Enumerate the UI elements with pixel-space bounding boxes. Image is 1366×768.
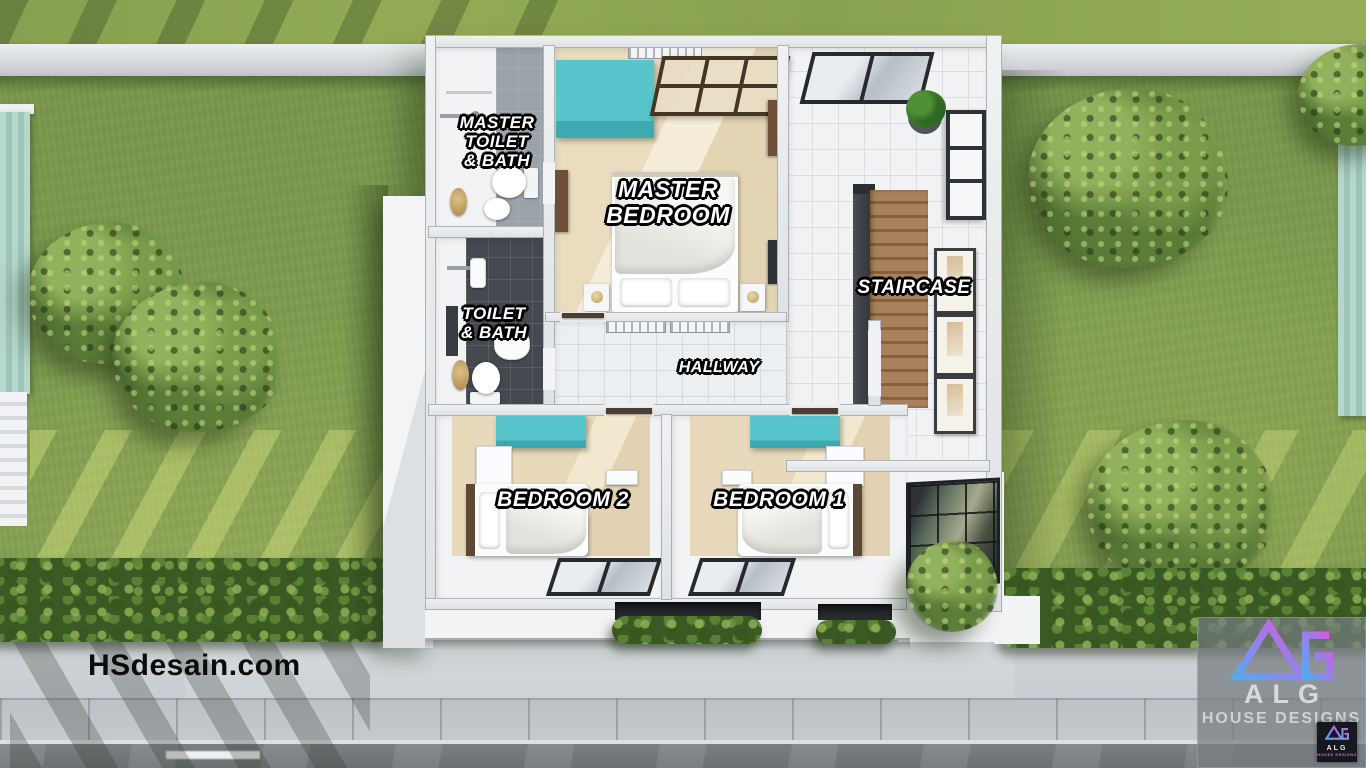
wall-art: [934, 314, 976, 376]
pillow: [620, 278, 672, 306]
headboard: [853, 484, 862, 556]
door: [792, 408, 838, 414]
pedestal-sink: [484, 198, 510, 220]
towel-bar: [446, 91, 492, 94]
bedroom2-closet: [476, 446, 512, 486]
ac-vent: [606, 321, 666, 333]
wall: [428, 226, 546, 238]
terrace-bush: [906, 540, 998, 632]
watermark: HSdesain.com: [88, 649, 301, 683]
alg-logo-icon: [1230, 619, 1334, 681]
door-opening: [543, 162, 555, 204]
wall-art: [934, 376, 976, 434]
door: [606, 408, 652, 414]
label-master-toilet-bath: MASTER TOILET & BATH: [460, 113, 535, 170]
studio-badge: ALG HOUSE DESIGNS: [1317, 722, 1357, 762]
nightstand: [740, 284, 765, 311]
opening: [868, 330, 881, 396]
bedroom2-cabinet: [496, 414, 586, 448]
master-wardrobe: [556, 60, 654, 138]
toilet-tank: [524, 168, 538, 198]
tree: [112, 282, 284, 432]
wall: [786, 460, 990, 472]
label-master-bedroom: MASTER BEDROOM: [606, 177, 730, 229]
left-gate: [0, 392, 27, 526]
pillow: [678, 278, 730, 306]
bedroom1-desk: [722, 470, 752, 485]
label-bedroom2: BEDROOM 2: [497, 488, 629, 512]
label-bedroom1: BEDROOM 1: [713, 488, 845, 512]
tree: [1028, 88, 1228, 268]
studio-logo-panel: ALG HOUSE DESIGNS ALG HOUSE DESIGNS: [1197, 617, 1366, 768]
wall: [661, 414, 672, 600]
wall: [425, 35, 1002, 48]
door: [562, 313, 604, 318]
right-fence: [1338, 118, 1366, 416]
bedroom2-desk: [606, 470, 638, 485]
badge-caption: HOUSE DESIGNS: [1317, 752, 1357, 758]
door-opening: [543, 348, 555, 390]
bedroom1-cabinet: [750, 414, 840, 448]
alg-badge-icon: [1325, 725, 1349, 740]
headboard: [466, 484, 475, 556]
skylight: [688, 558, 796, 596]
tree: [1086, 420, 1276, 588]
label-staircase: STAIRCASE: [858, 277, 971, 298]
studio-name: ALG: [1197, 679, 1366, 710]
floor-plan-scene: MASTER TOILET & BATH MASTER BEDROOM TOIL…: [0, 0, 1366, 768]
ac-vent: [670, 321, 730, 333]
bath-vanity: [446, 306, 458, 356]
hedge-left: [0, 558, 392, 642]
label-toilet-bath: TOILET & BATH: [461, 304, 527, 342]
planter-bushes: [612, 616, 762, 644]
garage-opening: [818, 604, 892, 620]
vanity-sink: [450, 188, 467, 216]
left-fence: [0, 112, 30, 394]
planter-bushes: [816, 620, 896, 644]
badge-monogram: ALG: [1317, 745, 1357, 752]
nightstand: [584, 284, 609, 311]
label-hallway: HALLWAY: [679, 359, 760, 377]
water-heater: [470, 258, 486, 288]
vanity-sink: [452, 360, 469, 390]
wall: [425, 35, 436, 608]
toilet: [492, 166, 526, 198]
skylight: [546, 558, 662, 596]
side-window: [946, 110, 986, 220]
toilet: [472, 362, 500, 394]
wall: [777, 45, 789, 322]
